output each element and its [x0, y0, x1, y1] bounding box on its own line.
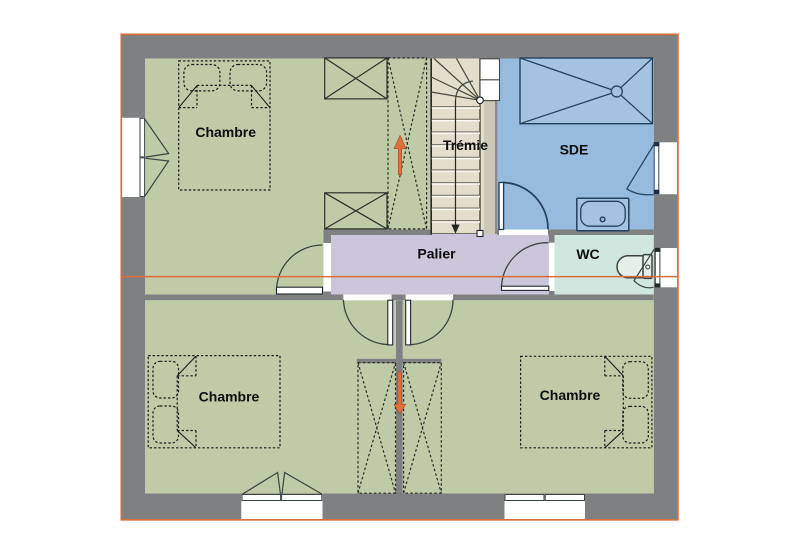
svg-text:Palier: Palier: [417, 245, 456, 261]
svg-text:Chambre: Chambre: [540, 387, 601, 403]
svg-text:Chambre: Chambre: [195, 124, 256, 140]
svg-text:Chambre: Chambre: [199, 389, 260, 405]
svg-text:WC: WC: [576, 246, 599, 262]
svg-text:SDE: SDE: [560, 141, 589, 157]
svg-text:Trémie: Trémie: [443, 137, 488, 153]
